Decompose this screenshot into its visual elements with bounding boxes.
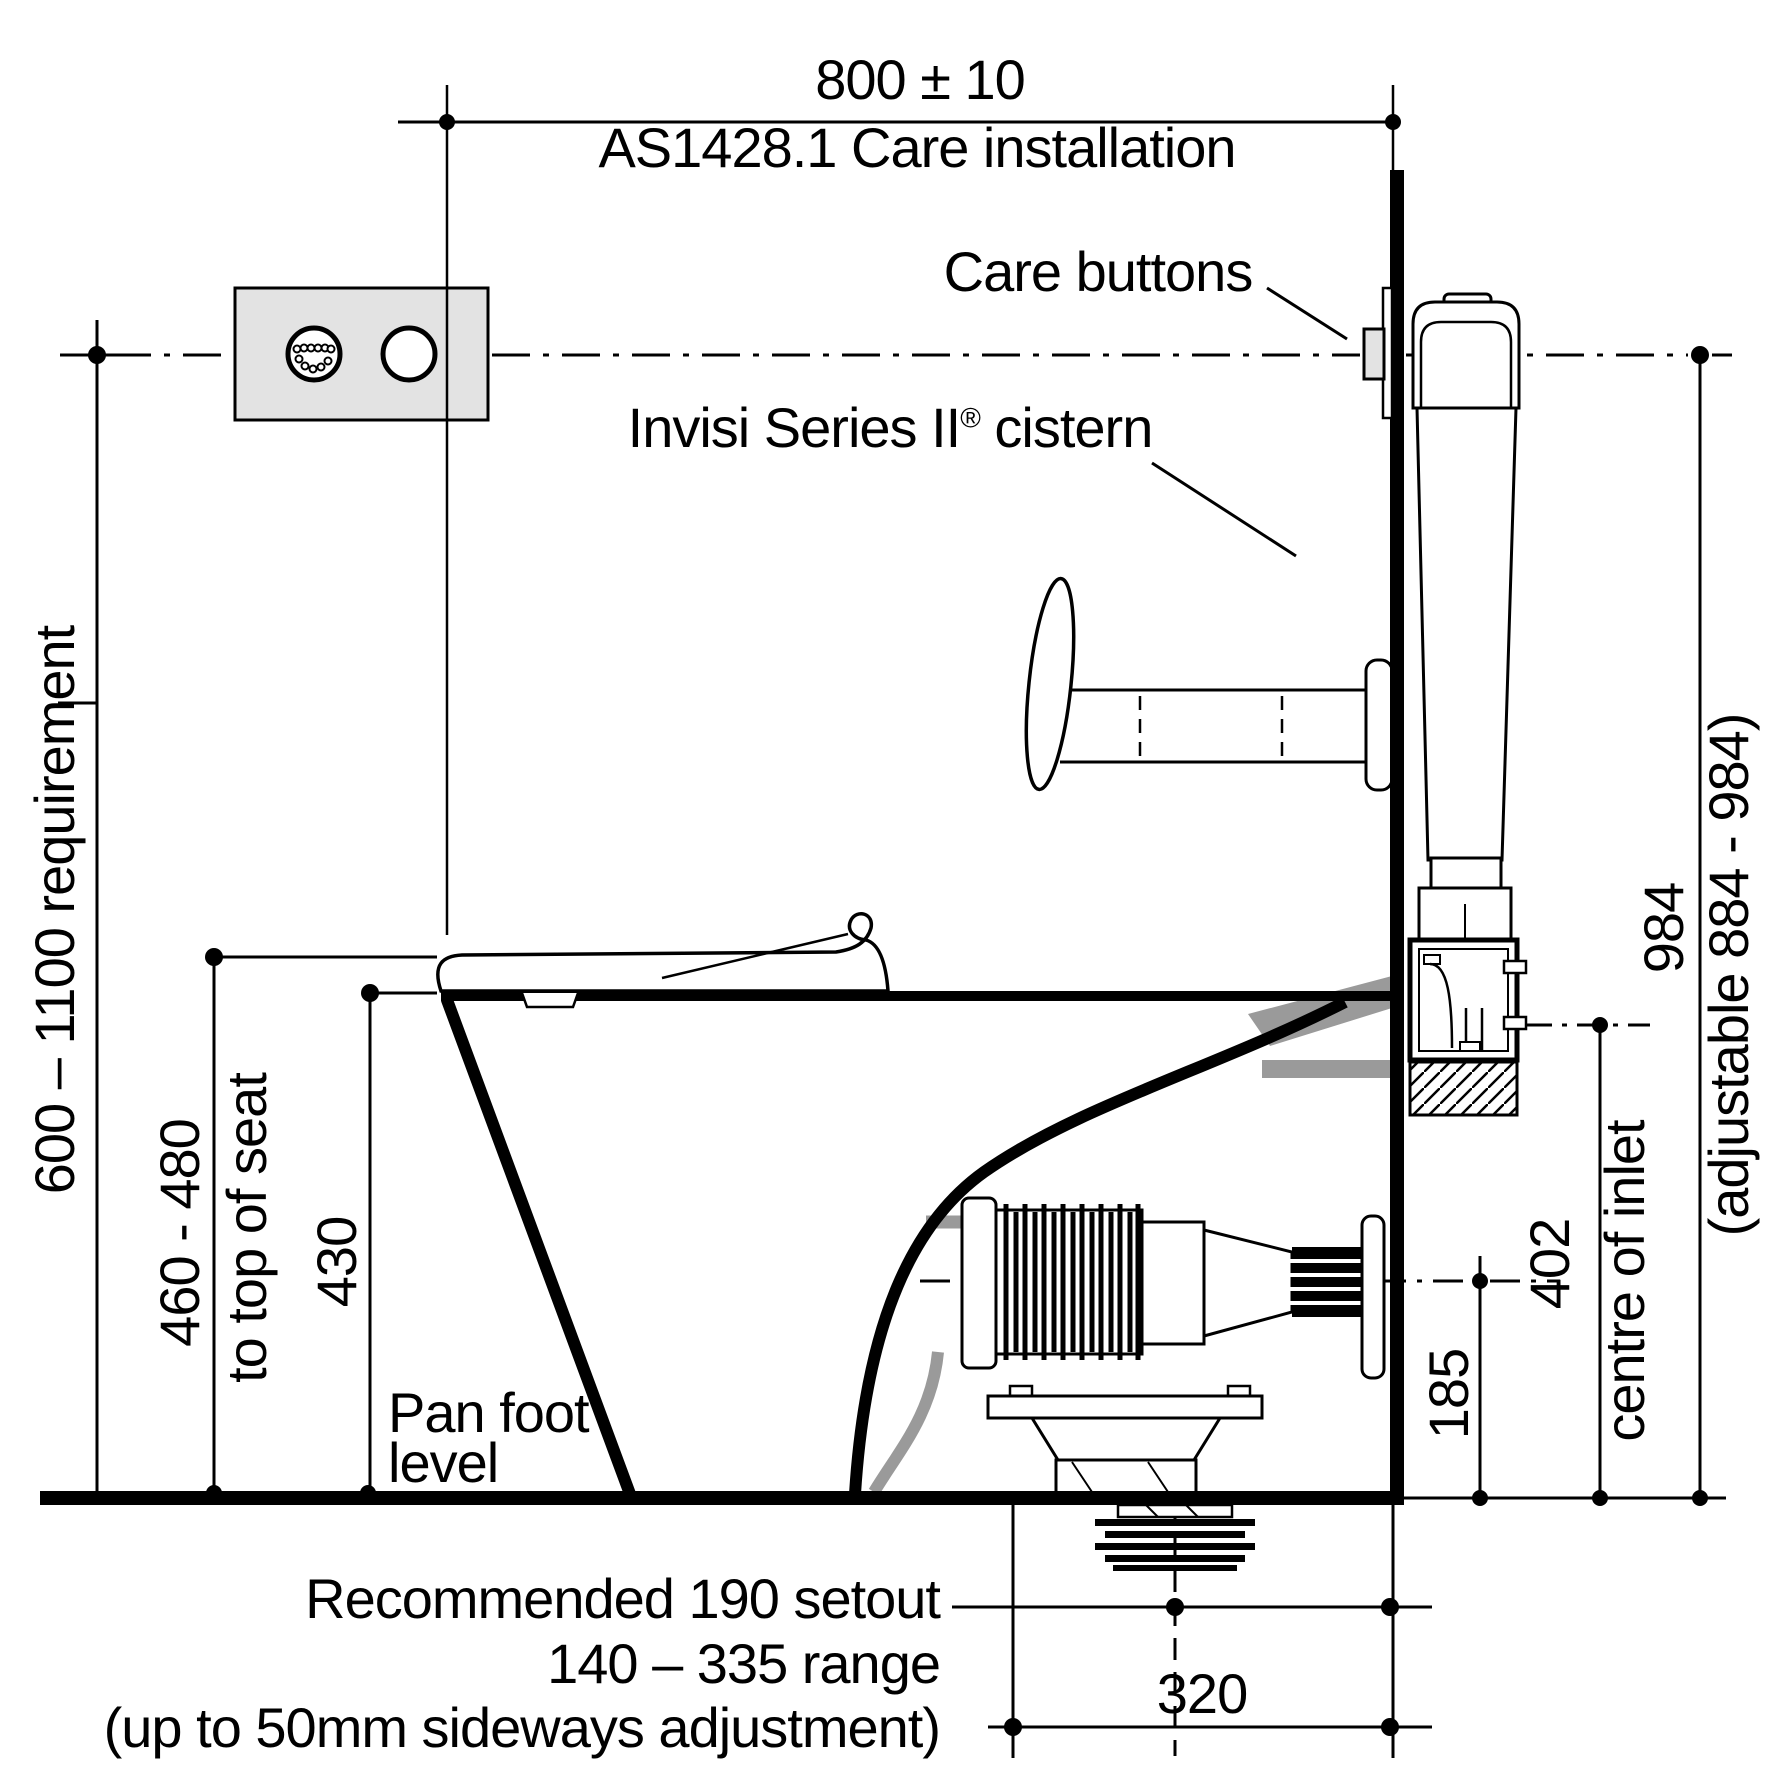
pan-height-label: 430 — [309, 1217, 365, 1307]
inlet-height-label: 185 — [1421, 1349, 1477, 1439]
connector-smooth-section — [1142, 1222, 1204, 1344]
cistern-leader — [1152, 463, 1296, 556]
seat-bumper — [522, 993, 578, 1007]
pan-foot-label-line2: level — [388, 1435, 498, 1491]
standard-label: AS1428.1 Care installation — [598, 120, 1235, 176]
toilet-seat — [438, 914, 888, 991]
technical-drawing-linework — [0, 0, 1772, 1772]
seat-range-label: 460 - 480 — [152, 1119, 208, 1347]
adjustable-range-label: (adjustable 884 - 984) — [1701, 714, 1757, 1237]
care-buttons-leader — [1267, 288, 1347, 339]
outlet-plate — [988, 1396, 1262, 1418]
setout-range-label: 140 – 335 range — [547, 1636, 940, 1692]
flush-pipe-connector — [962, 1198, 1384, 1378]
outlet-funnel — [1032, 1418, 1220, 1460]
cistern-dome-inner — [1421, 322, 1511, 408]
care-buttons-callout: Care buttons — [944, 244, 1253, 300]
flush-button-panel — [235, 288, 488, 420]
below-floor-outlet-pipe — [1095, 1505, 1255, 1571]
standard-button-icon — [383, 328, 435, 380]
cistern-tank — [1417, 408, 1516, 860]
roll-holder-disc — [1018, 576, 1082, 791]
pan-outlet-assembly — [988, 1386, 1262, 1494]
connector-taper — [1204, 1230, 1292, 1336]
outlet-collar — [1056, 1460, 1196, 1494]
corrugation-ribs — [1006, 1204, 1138, 1360]
wall-care-button — [1364, 288, 1392, 418]
invisi-cistern — [1410, 294, 1526, 1115]
installation-diagram: 800 ± 10 AS1428.1 Care installation Care… — [0, 0, 1772, 1772]
centre-of-inlet-label: centre of inlet — [1597, 1120, 1653, 1441]
connector-flange — [962, 1198, 996, 1368]
flush-pipe — [1431, 858, 1501, 888]
inlet-centre-height-label: 402 — [1522, 1219, 1578, 1309]
offset-320-label: 320 — [1157, 1666, 1247, 1722]
sideways-note-label: (up to 50mm sideways adjustment) — [104, 1700, 940, 1756]
recommended-setout-label: Recommended 190 setout — [305, 1571, 940, 1627]
supply-hose — [874, 1352, 938, 1492]
requirement-label: 600 – 1100 requirement — [27, 626, 83, 1195]
wall-connection-plate — [1362, 1216, 1384, 1378]
cistern-callout: Invisi Series II® cistern — [628, 400, 1153, 456]
button-height-label: 984 — [1636, 883, 1692, 973]
pan-grey-band — [1262, 1060, 1392, 1078]
seat-note-label: to top of seat — [219, 1073, 275, 1383]
width-dimension-label: 800 ± 10 — [815, 52, 1025, 108]
toilet-roll-holder — [1018, 576, 1392, 791]
threaded-wall-fitting — [1292, 1247, 1362, 1317]
